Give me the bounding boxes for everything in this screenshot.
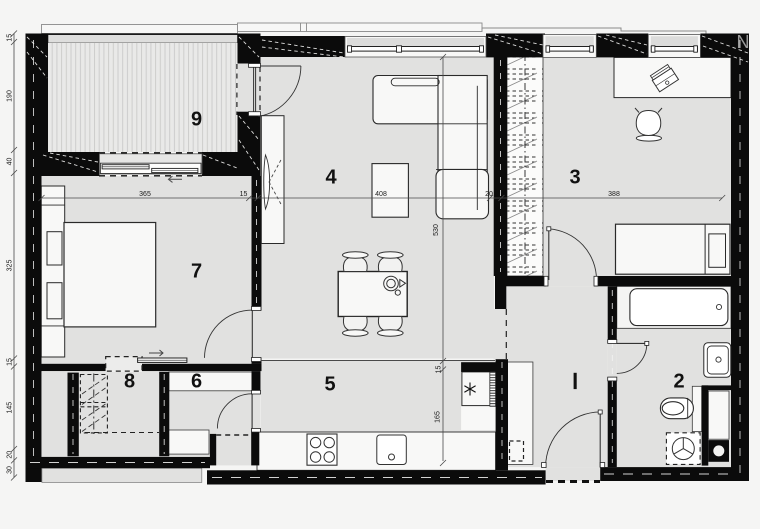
svg-text:15: 15 (436, 366, 443, 374)
svg-text:N: N (737, 32, 750, 52)
svg-text:5: 5 (324, 374, 335, 396)
svg-text:408: 408 (375, 191, 387, 198)
svg-text:15: 15 (7, 34, 14, 42)
svg-text:190: 190 (7, 90, 14, 102)
svg-text:325: 325 (7, 260, 14, 272)
svg-text:145: 145 (7, 402, 14, 414)
svg-text:2: 2 (673, 371, 684, 393)
svg-text:365: 365 (139, 191, 151, 198)
svg-text:165: 165 (435, 411, 442, 423)
svg-text:6: 6 (191, 371, 202, 393)
svg-text:388: 388 (608, 191, 620, 198)
svg-text:40: 40 (7, 158, 14, 166)
svg-text:8: 8 (124, 371, 135, 393)
svg-text:20: 20 (7, 451, 14, 459)
svg-text:30: 30 (7, 466, 14, 474)
svg-text:20: 20 (485, 191, 493, 198)
svg-text:15: 15 (240, 191, 248, 198)
svg-text:15: 15 (7, 358, 14, 366)
svg-text:9: 9 (191, 109, 202, 131)
svg-text:4: 4 (325, 166, 337, 188)
svg-text:530: 530 (433, 224, 440, 236)
svg-text:3: 3 (569, 167, 580, 189)
svg-text:7: 7 (191, 261, 202, 283)
